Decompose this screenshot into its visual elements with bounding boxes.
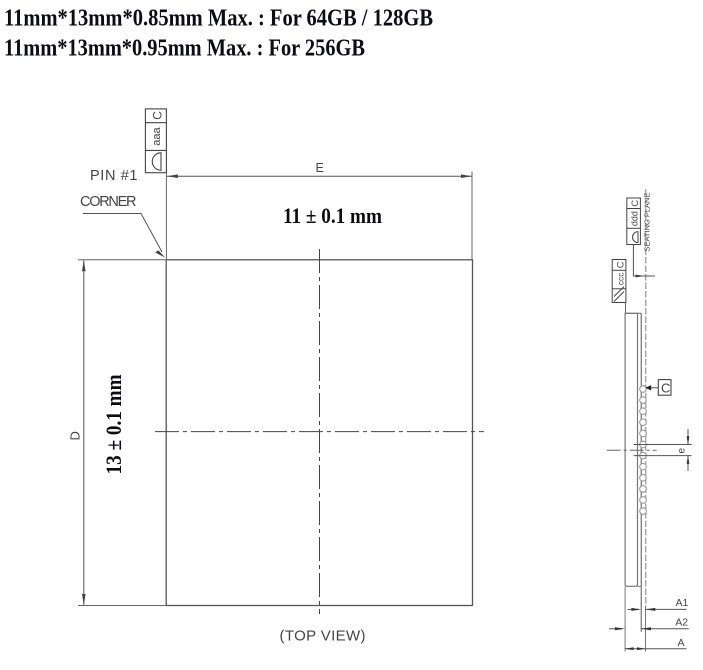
svg-text:A1: A1 (676, 597, 689, 609)
svg-text:CORNER: CORNER (80, 194, 137, 210)
svg-text:C: C (661, 381, 670, 396)
svg-text:C: C (616, 261, 627, 268)
svg-text:E: E (316, 161, 324, 175)
svg-text:11 ± 0.1 mm: 11 ± 0.1 mm (283, 203, 382, 228)
svg-text:11mm*13mm*0.95mm Max. : For 25: 11mm*13mm*0.95mm Max. : For 256GB (4, 35, 365, 62)
svg-text:13 ± 0.1 mm: 13 ± 0.1 mm (101, 374, 126, 474)
svg-text:C: C (630, 200, 641, 207)
svg-text:D: D (68, 431, 83, 440)
svg-text:e: e (677, 448, 688, 454)
svg-text:A2: A2 (675, 617, 688, 629)
svg-text:C: C (151, 111, 165, 120)
svg-text:A: A (678, 637, 685, 649)
svg-text:SEATING PLANE: SEATING PLANE (642, 193, 651, 252)
svg-text:PIN #1: PIN #1 (90, 168, 138, 184)
svg-text:ddd: ddd (630, 211, 640, 226)
svg-text:ccc: ccc (615, 272, 625, 286)
svg-text:11mm*13mm*0.85mm Max. : For 64: 11mm*13mm*0.85mm Max. : For 64GB / 128GB (4, 5, 433, 32)
svg-text:aaa: aaa (151, 126, 163, 145)
svg-text:(TOP VIEW): (TOP VIEW) (280, 628, 366, 645)
